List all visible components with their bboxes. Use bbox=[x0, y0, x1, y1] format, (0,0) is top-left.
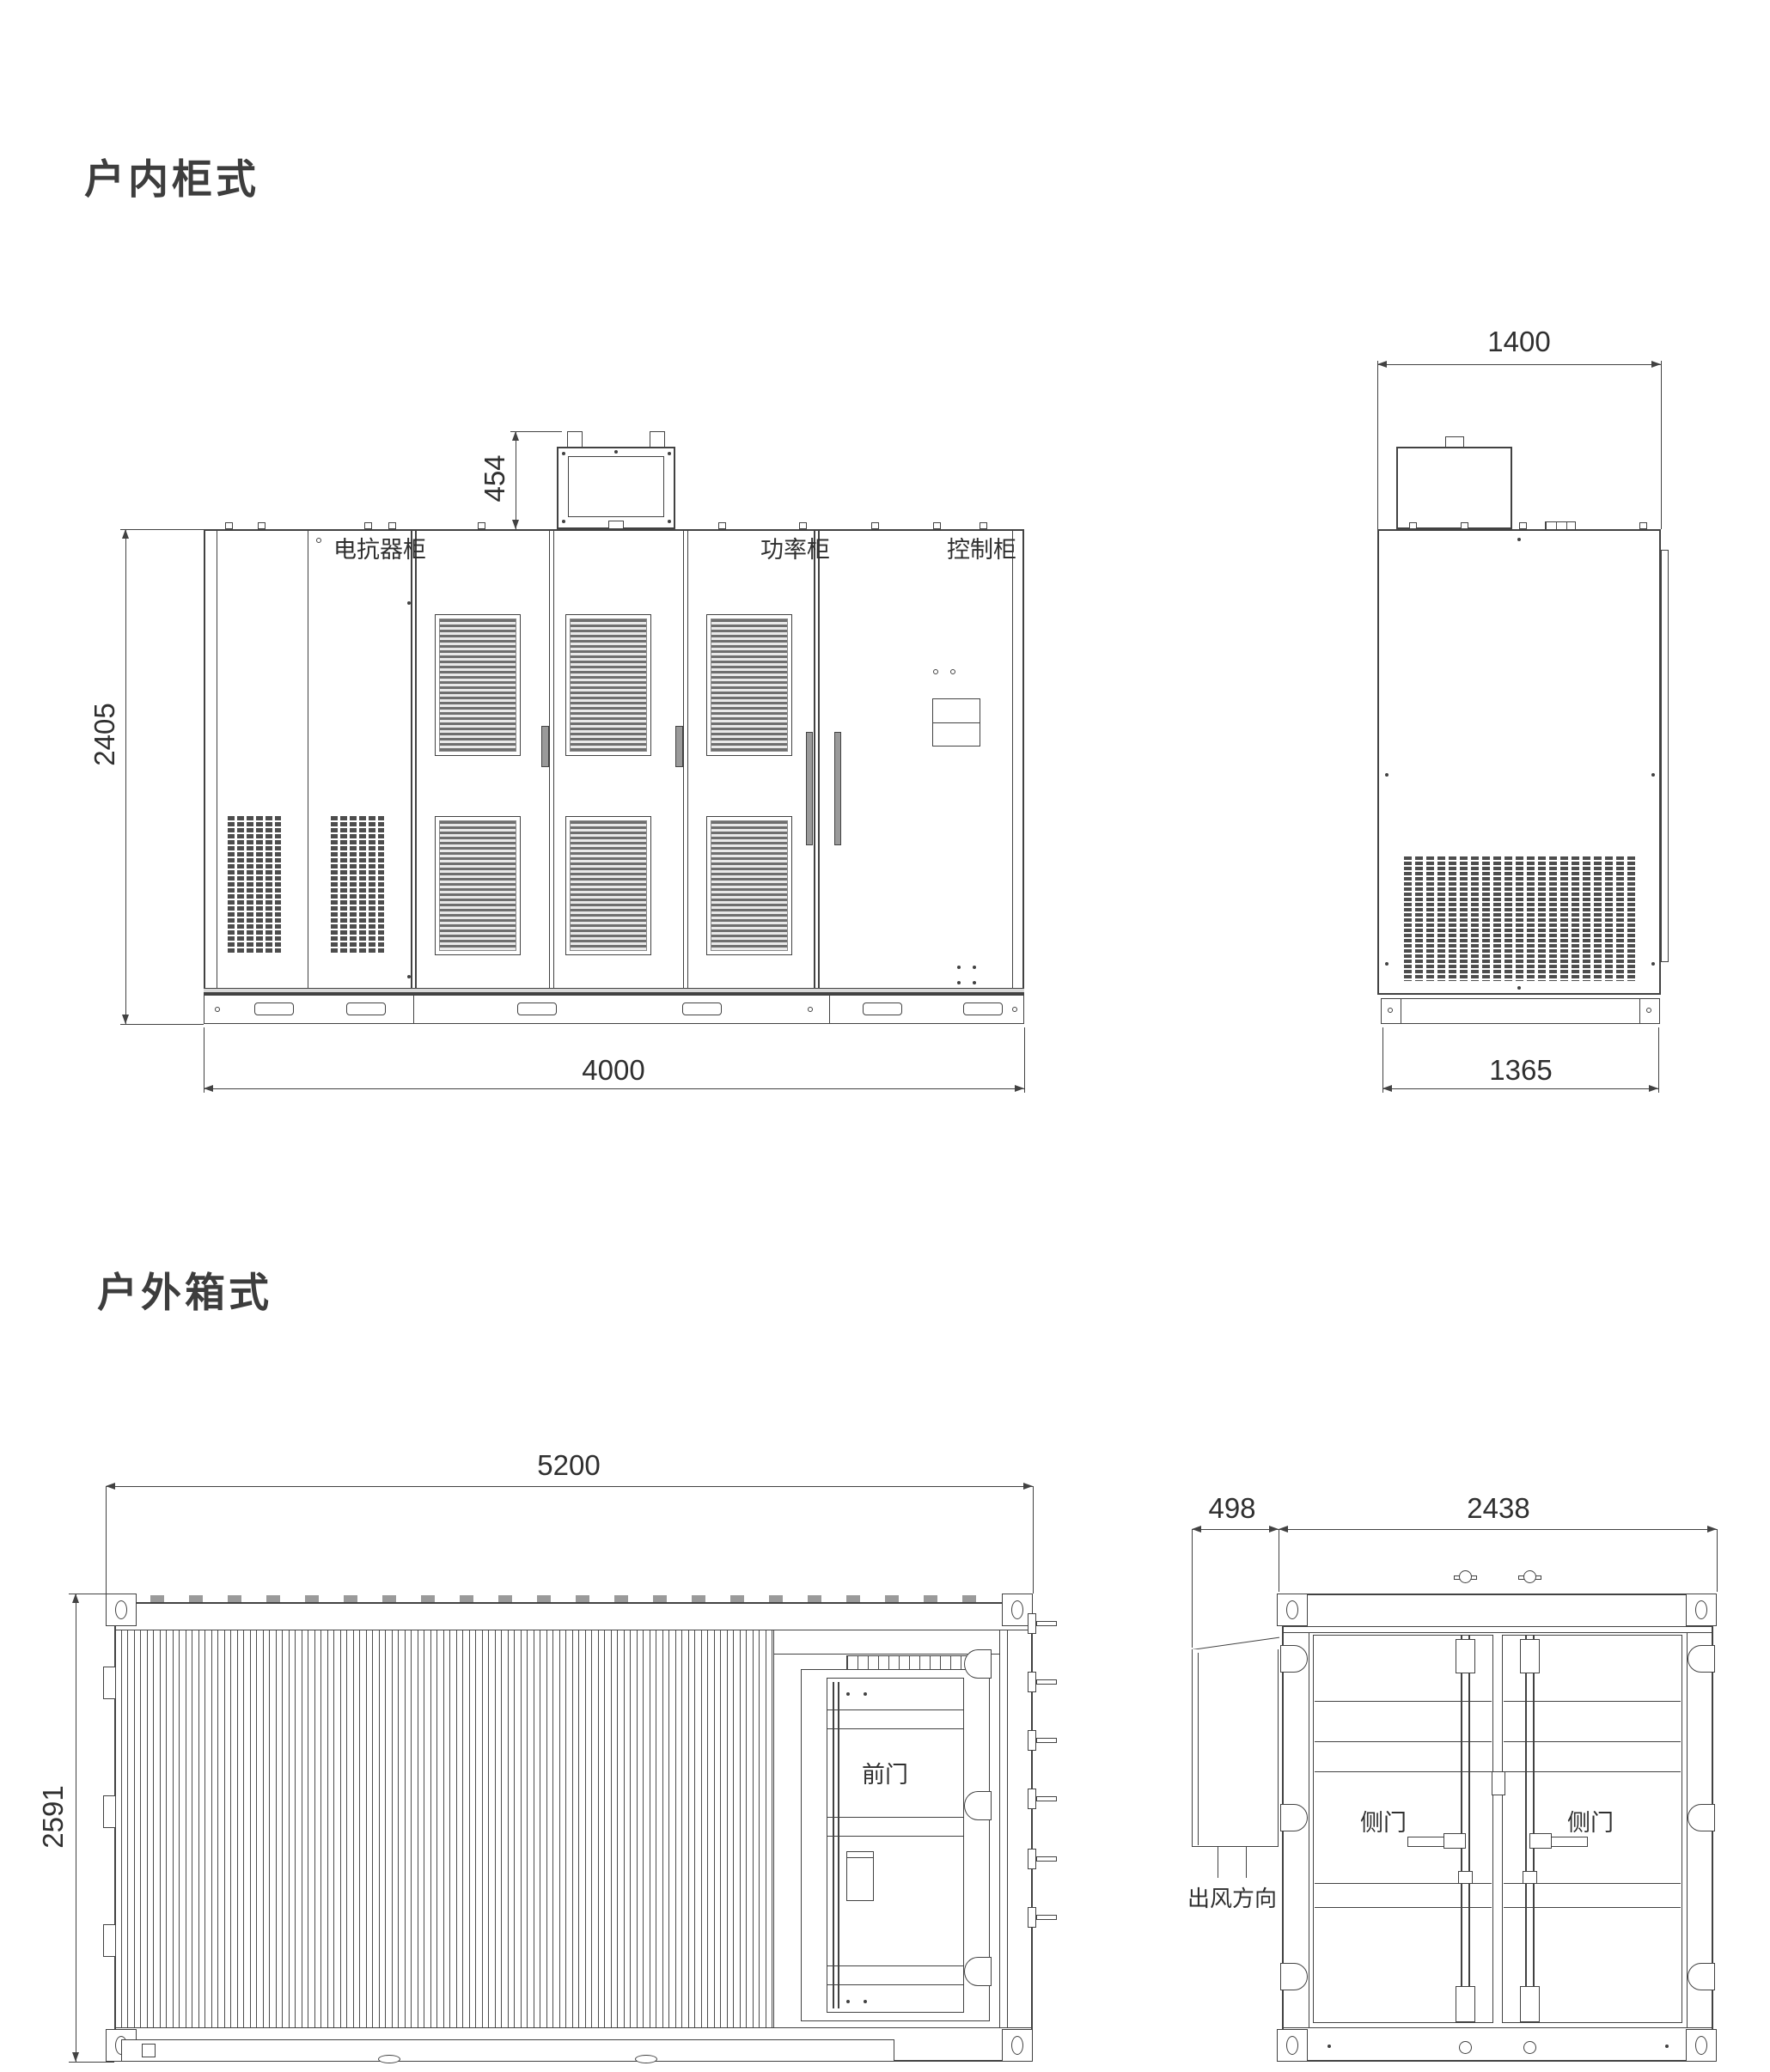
leader-line bbox=[1218, 1847, 1218, 1878]
dimension-line bbox=[106, 1486, 1033, 1487]
plinth-slot bbox=[963, 1002, 1003, 1015]
corner-fitting-hole bbox=[1011, 2036, 1023, 2055]
roof-clip bbox=[933, 522, 941, 529]
side-vent-grille bbox=[1404, 856, 1639, 981]
roof-clip bbox=[225, 522, 233, 529]
screw-dot bbox=[864, 1692, 867, 1696]
hinge-pin bbox=[1036, 1621, 1057, 1626]
lock-rod bbox=[1525, 1635, 1535, 2023]
rod-cam bbox=[1459, 2041, 1472, 2054]
label-bullet bbox=[316, 538, 321, 543]
corner-fitting-hole bbox=[1695, 2036, 1707, 2055]
hinge-pin bbox=[1036, 1915, 1057, 1920]
screw-dot bbox=[957, 966, 961, 969]
door-hinge bbox=[1688, 1963, 1715, 1990]
front-door-rail bbox=[827, 1728, 964, 1729]
door-handle bbox=[834, 732, 841, 845]
rod-cam bbox=[1523, 1570, 1536, 1583]
control-recess-divider bbox=[932, 722, 980, 723]
rod-bracket bbox=[1456, 1639, 1475, 1673]
front-door-rail bbox=[827, 1709, 964, 1710]
panel-divider bbox=[1012, 529, 1013, 995]
hinge-pin-plate bbox=[1028, 1789, 1036, 1809]
dimension-line bbox=[516, 431, 516, 529]
extension-line bbox=[1661, 361, 1662, 529]
screw-dot bbox=[614, 450, 618, 454]
door-hinge bbox=[1280, 1645, 1308, 1673]
front-door-hinge-bar bbox=[833, 1682, 839, 2008]
section-divider bbox=[411, 529, 417, 995]
wall-hinge-tab bbox=[103, 1924, 116, 1957]
screw-dot bbox=[864, 2000, 867, 2003]
dimension-arrow bbox=[1649, 1085, 1658, 1092]
louver-vent bbox=[706, 614, 792, 756]
dimension-arrow bbox=[1023, 1483, 1033, 1490]
roof-clip bbox=[871, 522, 879, 529]
extension-line bbox=[1279, 1529, 1279, 1592]
roof-clip bbox=[388, 522, 396, 529]
dimension-arrow bbox=[1015, 1085, 1024, 1092]
dimension-arrow bbox=[72, 1594, 79, 1603]
section-divider bbox=[814, 529, 820, 995]
duct-top-edge bbox=[1192, 1637, 1279, 1650]
corner-fitting-hole bbox=[1695, 1600, 1707, 1619]
hinge-pin bbox=[1036, 1738, 1057, 1743]
panel-divider bbox=[553, 529, 554, 995]
corner-post-line bbox=[1007, 1630, 1008, 2027]
panel-divider bbox=[687, 529, 688, 995]
control-cabinet-label: 控制柜 bbox=[947, 531, 1016, 564]
indicator-lamp bbox=[933, 669, 938, 674]
hinge-pin-plate bbox=[1028, 1849, 1036, 1869]
dimension-arrow bbox=[106, 1483, 115, 1490]
end-bottom-rail bbox=[1282, 2027, 1713, 2028]
panel-divider bbox=[308, 529, 308, 995]
screw-dot bbox=[407, 601, 411, 605]
screw-dot bbox=[1665, 2045, 1669, 2048]
reactor-cabinet-label: 电抗器柜 bbox=[333, 531, 426, 564]
screw-dot bbox=[957, 981, 961, 984]
dimension-line bbox=[125, 529, 126, 1024]
extension-line bbox=[69, 2062, 114, 2063]
end-top-rail bbox=[1282, 1632, 1713, 1633]
wall-hinge-tab bbox=[103, 1667, 116, 1699]
rod-guide bbox=[1458, 1871, 1473, 1884]
door-hinge bbox=[964, 1649, 992, 1679]
kick-rail bbox=[204, 988, 1024, 993]
screw-dot bbox=[973, 981, 976, 984]
screw-dot bbox=[846, 1692, 850, 1696]
screw-dot bbox=[1517, 538, 1521, 541]
extension-line bbox=[1658, 1027, 1659, 1093]
reactor-vent-grille bbox=[331, 816, 384, 954]
roof-clip bbox=[1409, 522, 1417, 529]
extension-line bbox=[1377, 361, 1378, 529]
dimension-arrow bbox=[1382, 1085, 1392, 1092]
rod-bracket bbox=[1520, 1986, 1540, 2022]
plinth-slot bbox=[254, 1002, 294, 1015]
rear-door-edge bbox=[1661, 550, 1669, 962]
roof-clip bbox=[478, 522, 485, 529]
roof-clip bbox=[799, 522, 807, 529]
dim-duct-height: 454 bbox=[479, 454, 511, 502]
screw-dot bbox=[1385, 773, 1389, 777]
document-holder bbox=[846, 1851, 874, 1901]
louver-vent bbox=[435, 614, 521, 756]
roof-clip bbox=[1519, 522, 1527, 529]
dim-container-height: 2591 bbox=[37, 1785, 70, 1848]
corner-fitting-hole bbox=[1286, 2036, 1298, 2055]
dimension-line bbox=[76, 1594, 76, 2062]
door-hinge bbox=[1280, 1804, 1308, 1831]
reactor-vent-grille bbox=[228, 816, 281, 954]
skirt-foot bbox=[378, 2055, 400, 2063]
dimension-line bbox=[204, 1088, 1024, 1089]
dim-side-top-width: 1400 bbox=[1487, 326, 1550, 358]
louver-vent bbox=[706, 816, 792, 955]
front-door-rail bbox=[827, 1965, 964, 1966]
hinge-pin-plate bbox=[1028, 1613, 1036, 1634]
rod-cam bbox=[1523, 2041, 1536, 2054]
dimension-arrow bbox=[512, 431, 519, 441]
plinth-slot bbox=[682, 1002, 722, 1015]
end-frame-line bbox=[1309, 1632, 1309, 2027]
side-door-label-right: 侧门 bbox=[1567, 1804, 1614, 1837]
front-door-rail bbox=[827, 1984, 964, 1985]
plinth-bolt bbox=[215, 1007, 220, 1012]
plinth-slot bbox=[517, 1002, 557, 1015]
screw-dot bbox=[562, 452, 565, 455]
extension-line bbox=[106, 1486, 107, 1594]
door-lock-handle-hub bbox=[1529, 1833, 1552, 1849]
door-hinge bbox=[964, 1791, 992, 1820]
door-handle bbox=[806, 732, 813, 845]
corner-fitting-hole bbox=[1286, 1600, 1298, 1619]
corner-fitting-hole bbox=[115, 1600, 127, 1619]
dimension-arrow bbox=[512, 520, 519, 529]
dimension-line bbox=[1377, 364, 1661, 365]
roof-clip bbox=[718, 522, 726, 529]
wall-hinge-tab bbox=[103, 1795, 116, 1828]
panel-divider bbox=[549, 529, 550, 995]
dimension-arrow bbox=[122, 1015, 129, 1024]
screw-dot bbox=[668, 452, 671, 455]
plinth-slot bbox=[346, 1002, 386, 1015]
dimension-arrow bbox=[1377, 361, 1387, 368]
dimension-arrow bbox=[1279, 1526, 1288, 1533]
skirt-foot bbox=[635, 2055, 657, 2063]
hinge-pin-plate bbox=[1028, 1907, 1036, 1928]
rod-bracket bbox=[1456, 1986, 1475, 2022]
screw-dot bbox=[973, 966, 976, 969]
duct-lifting-tab bbox=[567, 431, 583, 448]
corner-post-line bbox=[999, 1630, 1000, 2027]
bottom-skirt bbox=[121, 2039, 894, 2062]
screw-dot bbox=[1327, 2045, 1331, 2048]
door-handle bbox=[541, 726, 549, 767]
roof-clip bbox=[1639, 522, 1647, 529]
indicator-lamp bbox=[950, 669, 955, 674]
dim-height: 2405 bbox=[88, 703, 121, 765]
door-hinge bbox=[1688, 1645, 1715, 1673]
door-lock-handle bbox=[1550, 1837, 1588, 1847]
dimension-arrow bbox=[122, 529, 129, 539]
screw-dot bbox=[1517, 986, 1521, 990]
dimension-arrow bbox=[204, 1085, 213, 1092]
dim-end-width: 2438 bbox=[1467, 1492, 1529, 1525]
screw-dot bbox=[407, 975, 411, 978]
bottom-rail-line bbox=[114, 2027, 1033, 2028]
roof-clip bbox=[258, 522, 265, 529]
front-door-rail bbox=[827, 1817, 964, 1818]
wall-edge bbox=[773, 1630, 774, 2027]
louver-vent bbox=[565, 614, 651, 756]
front-door-label: 前门 bbox=[862, 1756, 908, 1789]
dim-container-length: 5200 bbox=[537, 1449, 600, 1482]
extension-line bbox=[204, 1027, 204, 1093]
dimension-arrow bbox=[1707, 1526, 1717, 1533]
door-hinge bbox=[1688, 1804, 1715, 1831]
louver-vent bbox=[435, 816, 521, 955]
duct-foot bbox=[608, 521, 624, 529]
dimension-arrow bbox=[1192, 1526, 1201, 1533]
dimension-line bbox=[1382, 1088, 1658, 1089]
dim-side-base-width: 1365 bbox=[1489, 1054, 1552, 1087]
roof-duct-box-side bbox=[1396, 447, 1512, 529]
plinth-bolt bbox=[808, 1007, 813, 1012]
hinge-pin-plate bbox=[1028, 1730, 1036, 1751]
hinge-pin bbox=[1036, 1856, 1057, 1862]
screw-dot bbox=[1651, 962, 1655, 966]
skirt-detail bbox=[142, 2044, 156, 2057]
dimension-arrow bbox=[72, 2052, 79, 2062]
door-hinge bbox=[1280, 1963, 1308, 1990]
roof-clip bbox=[980, 522, 987, 529]
extension-line bbox=[1717, 1529, 1718, 1592]
end-frame-line bbox=[1687, 1632, 1688, 2027]
extension-line bbox=[120, 529, 204, 530]
extension-line bbox=[1192, 1529, 1193, 1648]
dimension-arrow bbox=[1269, 1526, 1279, 1533]
screw-dot bbox=[1651, 773, 1655, 777]
air-flow-label: 出风方向 bbox=[1187, 1881, 1277, 1913]
screw-dot bbox=[668, 520, 671, 523]
leader-line bbox=[1246, 1847, 1247, 1878]
screw-dot bbox=[1385, 962, 1389, 966]
dim-duct-depth: 498 bbox=[1208, 1492, 1255, 1525]
plinth-bolt bbox=[1388, 1008, 1393, 1013]
plinth-joint bbox=[413, 995, 414, 1024]
front-door-rail bbox=[827, 1836, 964, 1837]
bay-band-line bbox=[773, 1654, 999, 1655]
door-handle bbox=[675, 726, 683, 767]
door-hinge bbox=[964, 1957, 992, 1986]
plinth-bolt bbox=[1012, 1007, 1017, 1012]
duct-lifting-tab bbox=[650, 431, 665, 448]
door-lock-handle bbox=[1407, 1837, 1445, 1847]
extension-line bbox=[1033, 1486, 1034, 1594]
center-latch bbox=[1492, 1771, 1505, 1795]
screw-dot bbox=[562, 520, 565, 523]
hinge-pin bbox=[1036, 1679, 1057, 1685]
door-lock-handle-hub bbox=[1443, 1833, 1466, 1849]
roof-clip bbox=[1461, 522, 1468, 529]
panel-divider bbox=[683, 529, 684, 995]
indoor-section-title: 户内柜式 bbox=[84, 146, 259, 205]
drawing-canvas: 户内柜式 电 bbox=[0, 0, 1770, 2072]
rod-guide bbox=[1523, 1871, 1537, 1884]
corner-fitting-hole bbox=[1011, 1600, 1023, 1619]
hinge-pin-plate bbox=[1028, 1672, 1036, 1692]
screw-dot bbox=[846, 2000, 850, 2003]
dimension-arrow bbox=[1651, 361, 1661, 368]
outdoor-section-title: 户外箱式 bbox=[97, 1259, 272, 1319]
end-top-rail bbox=[1282, 1626, 1713, 1627]
rod-bracket bbox=[1520, 1639, 1540, 1673]
air-outlet-duct bbox=[1192, 1649, 1279, 1847]
plinth-bolt bbox=[1646, 1008, 1651, 1013]
lock-rod bbox=[1461, 1635, 1470, 2023]
louver-vent bbox=[565, 816, 651, 955]
roof-duct-inner bbox=[568, 456, 664, 517]
side-door-label-left: 侧门 bbox=[1360, 1804, 1407, 1837]
hinge-pin bbox=[1036, 1796, 1057, 1801]
extension-line bbox=[120, 1024, 204, 1025]
dimension-line bbox=[1192, 1529, 1279, 1530]
plinth-slot bbox=[863, 1002, 902, 1015]
duct-inner-line bbox=[1198, 1653, 1199, 1845]
power-cabinet-label: 功率柜 bbox=[760, 531, 830, 564]
plinth-side bbox=[1381, 998, 1660, 1024]
extension-line bbox=[1024, 1027, 1025, 1093]
extension-line bbox=[1382, 1027, 1383, 1093]
plinth-joint bbox=[829, 995, 830, 1024]
dimension-line bbox=[1279, 1529, 1717, 1530]
roof-clip bbox=[364, 522, 372, 529]
document-holder-lid bbox=[846, 1857, 874, 1858]
rod-cam bbox=[1459, 1570, 1472, 1583]
panel-divider bbox=[217, 529, 217, 995]
corrugated-wall bbox=[121, 1630, 773, 2027]
dim-width: 4000 bbox=[582, 1054, 644, 1087]
